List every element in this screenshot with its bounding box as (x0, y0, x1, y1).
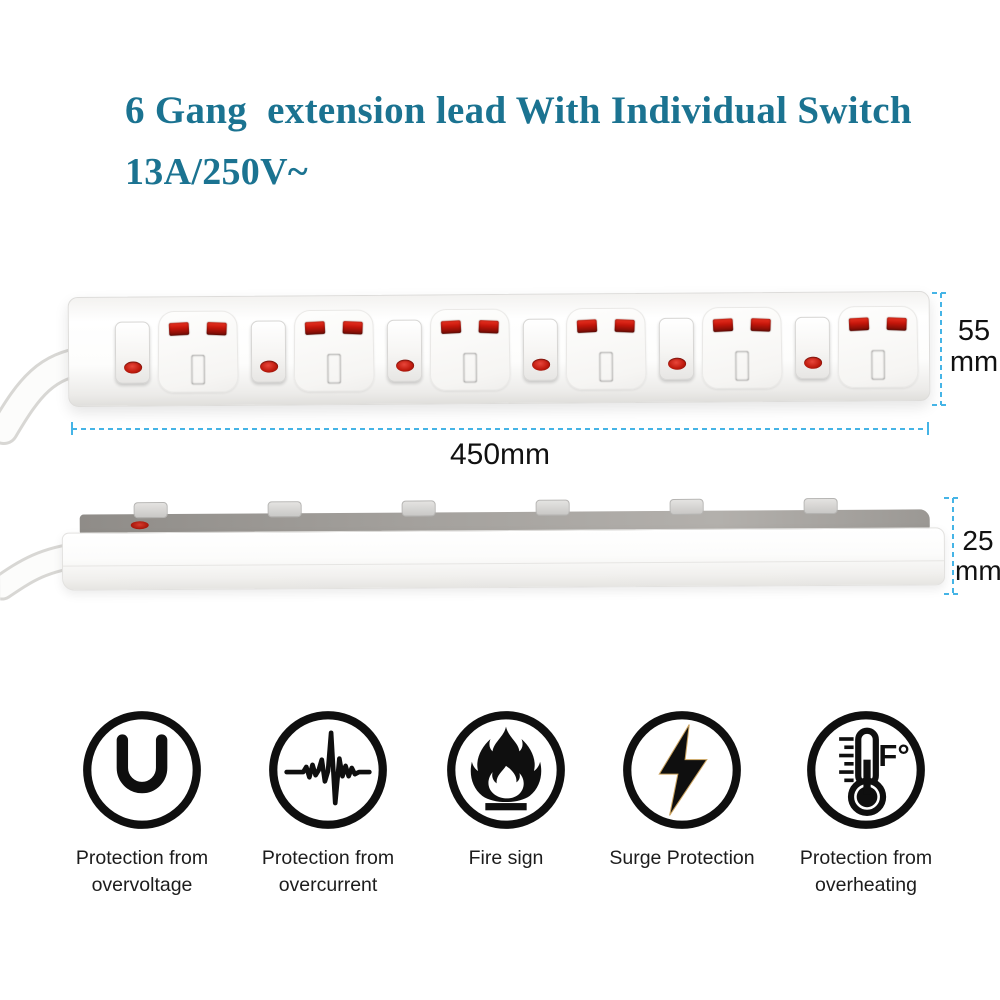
features-row: Protection from overvoltage Protection f… (0, 700, 1000, 930)
product-rating: 13A/250V~ (125, 150, 965, 194)
dimension-cap-bottom (932, 404, 950, 406)
overvoltage-protection-icon (80, 708, 204, 832)
socket-slot-earth (192, 355, 205, 384)
power-strip-top-view (68, 291, 931, 407)
socket-slot-neutral (207, 322, 227, 336)
length-dimension-label: 450mm (72, 438, 928, 472)
overheating-protection-icon: F° (804, 708, 928, 832)
side-switch-tab (670, 499, 704, 515)
side-switch-tab (134, 502, 168, 518)
switch-neon-indicator (804, 357, 822, 369)
dimension-cap-top (944, 497, 962, 499)
switch-neon-indicator (396, 360, 414, 372)
socket-face (158, 311, 239, 393)
socket-unit (113, 297, 250, 406)
side-switch-tab (268, 501, 302, 517)
socket-slot-neutral (887, 317, 907, 331)
socket-unit (793, 292, 930, 401)
svg-text:F°: F° (878, 738, 909, 773)
side-switch-tab (536, 500, 570, 516)
side-switch-tab (402, 500, 436, 516)
height-dimension-line (940, 293, 942, 405)
feature-label: Protection from overvoltage (54, 845, 230, 899)
socket-unit (657, 293, 794, 402)
dimension-cap-top (932, 292, 950, 294)
product-title: 6 Gang extension lead With Individual Sw… (125, 88, 965, 133)
socket-unit (249, 296, 386, 405)
socket-slot-live (305, 321, 326, 335)
socket-unit (521, 294, 658, 403)
socket-slot-neutral (479, 320, 499, 334)
socket-face (838, 306, 919, 388)
height-dimension-label: 55 mm (948, 316, 1000, 377)
dimension-tick-left (71, 422, 73, 435)
socket-face (294, 310, 375, 392)
thickness-dimension-label: 25 mm (955, 526, 1000, 585)
feature-label: Surge Protection (594, 845, 770, 872)
title-block: 6 Gang extension lead With Individual Sw… (125, 88, 965, 194)
switch-neon-indicator (668, 358, 686, 370)
fire-sign-icon (444, 708, 568, 832)
switch-neon-indicator (532, 359, 550, 371)
socket-slot-live (713, 318, 734, 332)
socket-slot-neutral (751, 318, 771, 332)
side-view-group (0, 487, 1000, 643)
socket-slot-live (169, 322, 190, 336)
side-neon-indicator (131, 521, 149, 529)
socket-slot-earth (464, 353, 477, 382)
feature-fire-sign: Fire sign (418, 708, 594, 872)
top-view: 55 mm 450mm (0, 280, 1000, 490)
surge-protection-icon (620, 708, 744, 832)
rocker-switch (659, 318, 694, 380)
thickness-dimension-line (952, 498, 954, 594)
switch-neon-indicator (260, 361, 278, 373)
socket-slot-neutral (615, 319, 635, 333)
socket-slot-live (441, 320, 462, 334)
rocker-switch (523, 319, 558, 381)
feature-label: Protection from overheating (778, 845, 954, 899)
feature-overheating: F° Protection from overheating (778, 708, 954, 899)
power-strip-side-body (62, 527, 945, 590)
side-switch-tab (804, 498, 838, 514)
length-dimension-line (72, 428, 928, 430)
dimension-tick-right (927, 422, 929, 435)
socket-slot-live (849, 317, 870, 331)
socket-slot-live (577, 319, 598, 333)
socket-unit (385, 295, 522, 404)
overcurrent-protection-icon (266, 708, 390, 832)
feature-surge-protection: Surge Protection (594, 708, 770, 872)
socket-slot-earth (872, 350, 885, 379)
socket-face (430, 309, 511, 391)
feature-overcurrent: Protection from overcurrent (240, 708, 416, 899)
rocker-switch (251, 320, 286, 382)
socket-slot-earth (736, 351, 749, 380)
rocker-switch (115, 321, 150, 383)
socket-units (113, 292, 930, 406)
side-body-crease (63, 561, 944, 567)
socket-slot-earth (600, 352, 613, 381)
rocker-switch (387, 320, 422, 382)
socket-face (702, 307, 783, 389)
feature-label: Fire sign (418, 845, 594, 872)
product-infographic: 6 Gang extension lead With Individual Sw… (0, 0, 1000, 1000)
socket-slot-neutral (343, 321, 363, 335)
socket-slot-earth (328, 354, 341, 383)
socket-face (566, 308, 647, 390)
feature-overvoltage: Protection from overvoltage (54, 708, 230, 899)
dimension-cap-bottom (944, 593, 962, 595)
rocker-switch (795, 317, 830, 379)
feature-label: Protection from overcurrent (240, 845, 416, 899)
side-view: 25 mm (0, 490, 1000, 640)
switch-neon-indicator (124, 361, 142, 373)
